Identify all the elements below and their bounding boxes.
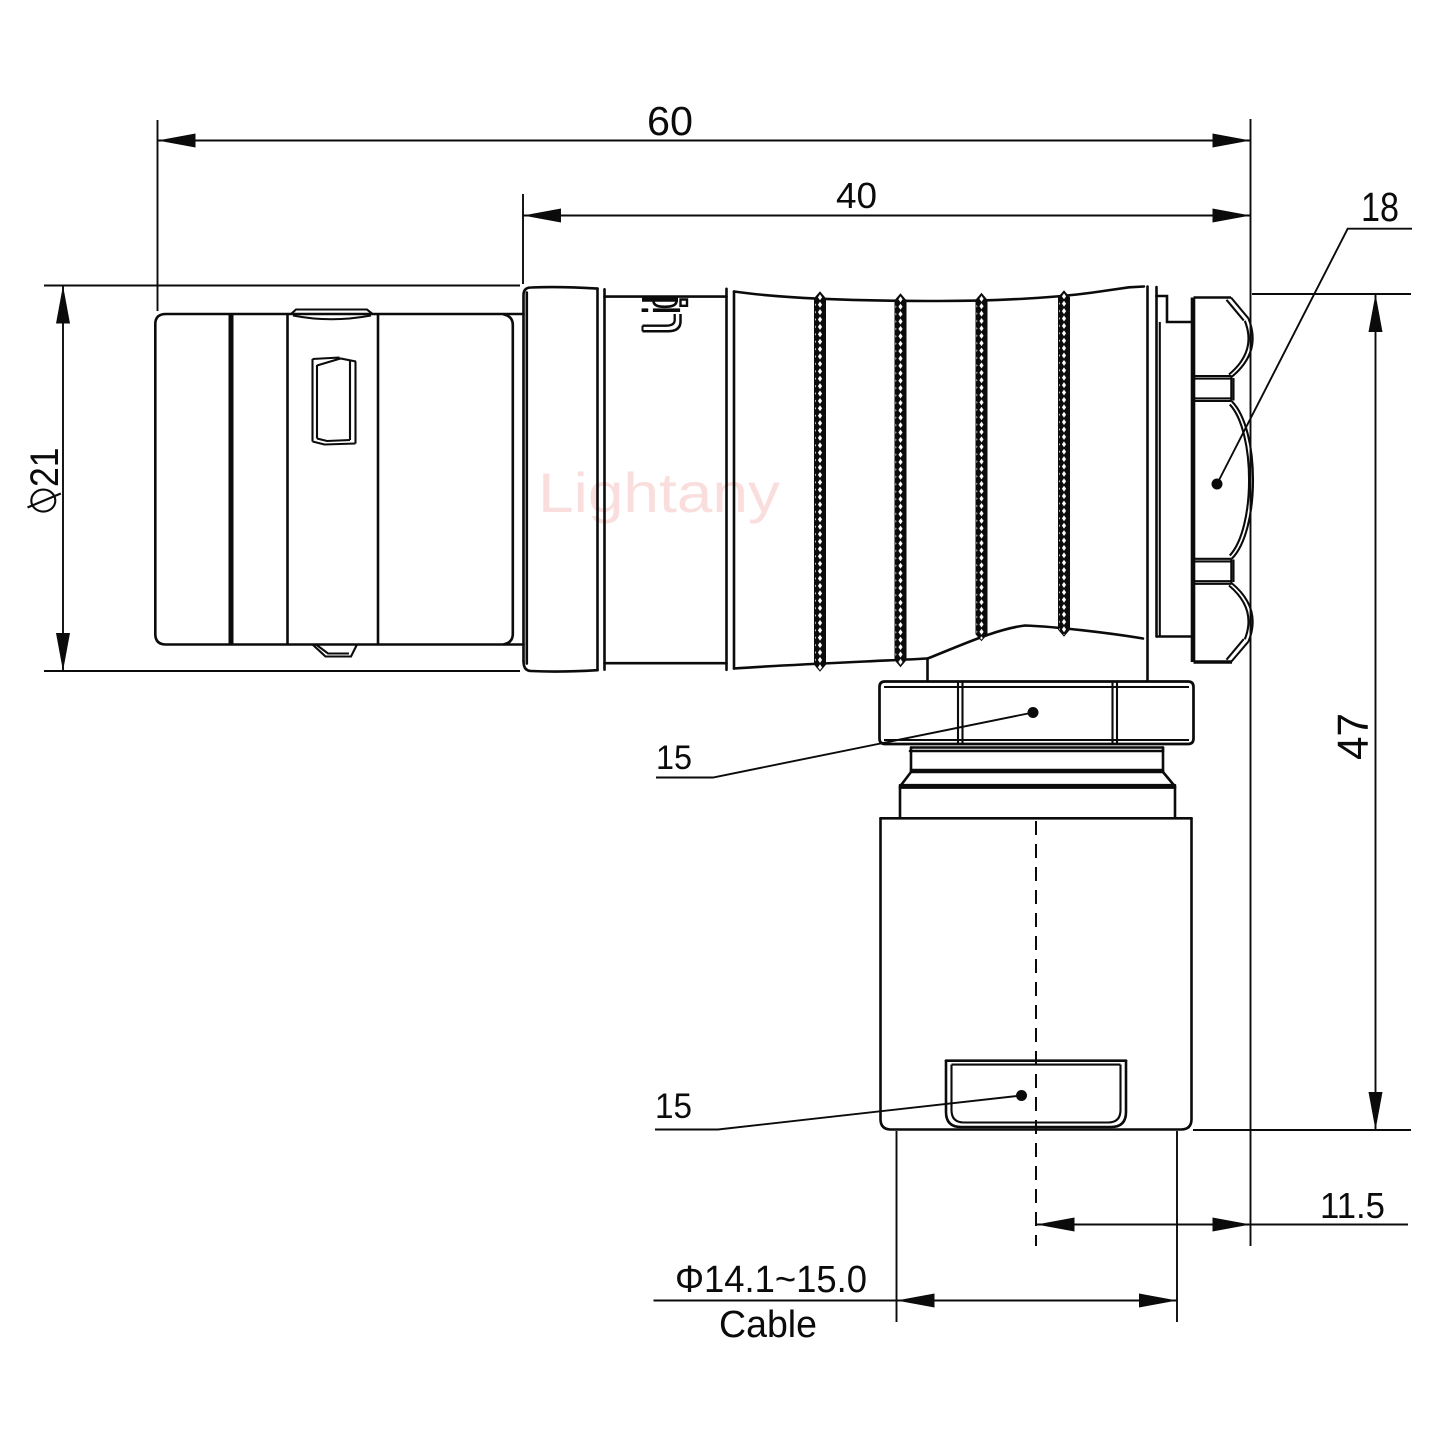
svg-text:15: 15 bbox=[656, 739, 692, 777]
svg-text:Lightany: Lightany bbox=[538, 461, 780, 524]
svg-text:47: 47 bbox=[1329, 713, 1378, 760]
svg-text:Cable: Cable bbox=[719, 1304, 817, 1346]
svg-text:60: 60 bbox=[647, 98, 693, 144]
svg-text:40: 40 bbox=[836, 175, 877, 216]
svg-text:Φ14.1~15.0: Φ14.1~15.0 bbox=[675, 1259, 867, 1301]
svg-text:18: 18 bbox=[1361, 184, 1399, 230]
svg-text:11.5: 11.5 bbox=[1320, 1185, 1385, 1226]
svg-text:21: 21 bbox=[23, 448, 67, 488]
svg-text:15: 15 bbox=[655, 1087, 692, 1126]
